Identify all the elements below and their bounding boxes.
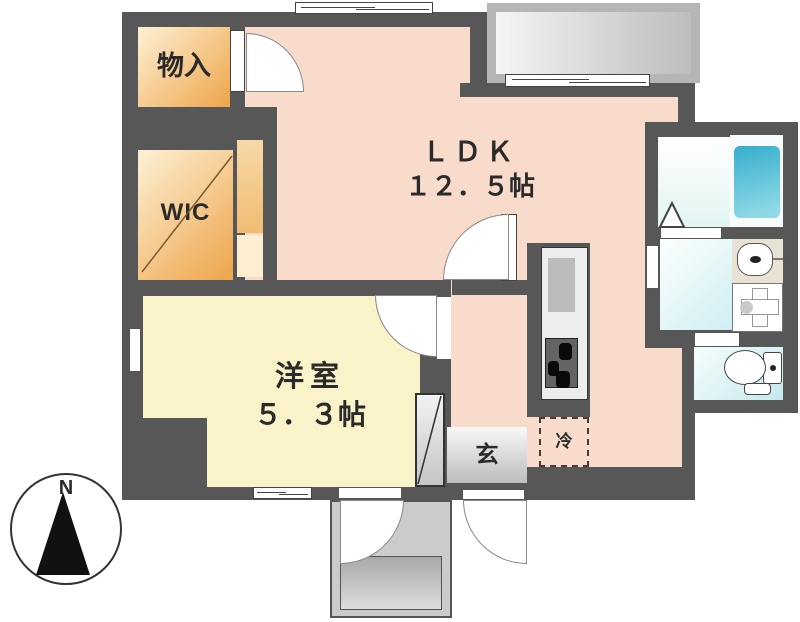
stove-burner [559, 343, 572, 360]
toilet-door [694, 332, 740, 347]
refrigerator-label: 冷 [556, 433, 573, 452]
floor-plan: 物入 WIC 洋室 ５．３帖 冷 玄 [0, 0, 800, 622]
entry-door-arc [463, 500, 527, 564]
western-room-porch-door-opening [338, 487, 402, 499]
washbasin-faucet [750, 256, 761, 263]
wic-side-shelf [237, 140, 263, 233]
washroom-sliding-door [646, 245, 659, 289]
refrigerator-space: 冷 [539, 417, 589, 467]
washroom [660, 239, 732, 330]
balcony-window [505, 74, 650, 87]
washer-pan-drain [740, 301, 753, 314]
ldk-label: ＬＤＫ [360, 138, 580, 168]
bathroom [658, 137, 730, 227]
storage-door-leaf [230, 30, 245, 92]
storage-label: 物入 [138, 52, 230, 82]
kitchen-sink [548, 258, 575, 312]
toilet-bowl [724, 350, 766, 385]
wic-label: WIC [138, 200, 233, 226]
western-room-window-west [129, 328, 141, 372]
western-room-doorway [437, 297, 451, 359]
western-room-window-south [253, 487, 312, 499]
western-room-size-label: ５．３帖 [200, 400, 420, 431]
bath-step [660, 227, 722, 239]
bathtub [734, 146, 780, 218]
compass-n-label: N [46, 477, 86, 499]
toilet-tank-button [770, 365, 776, 371]
toilet-mat [744, 383, 771, 395]
balcony-floor [496, 12, 691, 74]
wall-wic-right [263, 107, 277, 282]
stove-burner [556, 371, 570, 388]
ldk-room [245, 95, 678, 122]
ldk-top-window [295, 2, 433, 14]
wic-side-shelf [237, 235, 263, 277]
western-room-label: 洋室 [220, 362, 400, 394]
ldk-size-label: １２．５帖 [350, 172, 590, 201]
shoe-cabinet [415, 393, 445, 487]
genkan: 玄 [447, 427, 527, 483]
porch-step [340, 556, 442, 610]
entry-door-opening [462, 489, 525, 500]
wall-washroom-bottom [645, 330, 694, 348]
genkan-label: 玄 [476, 442, 499, 467]
